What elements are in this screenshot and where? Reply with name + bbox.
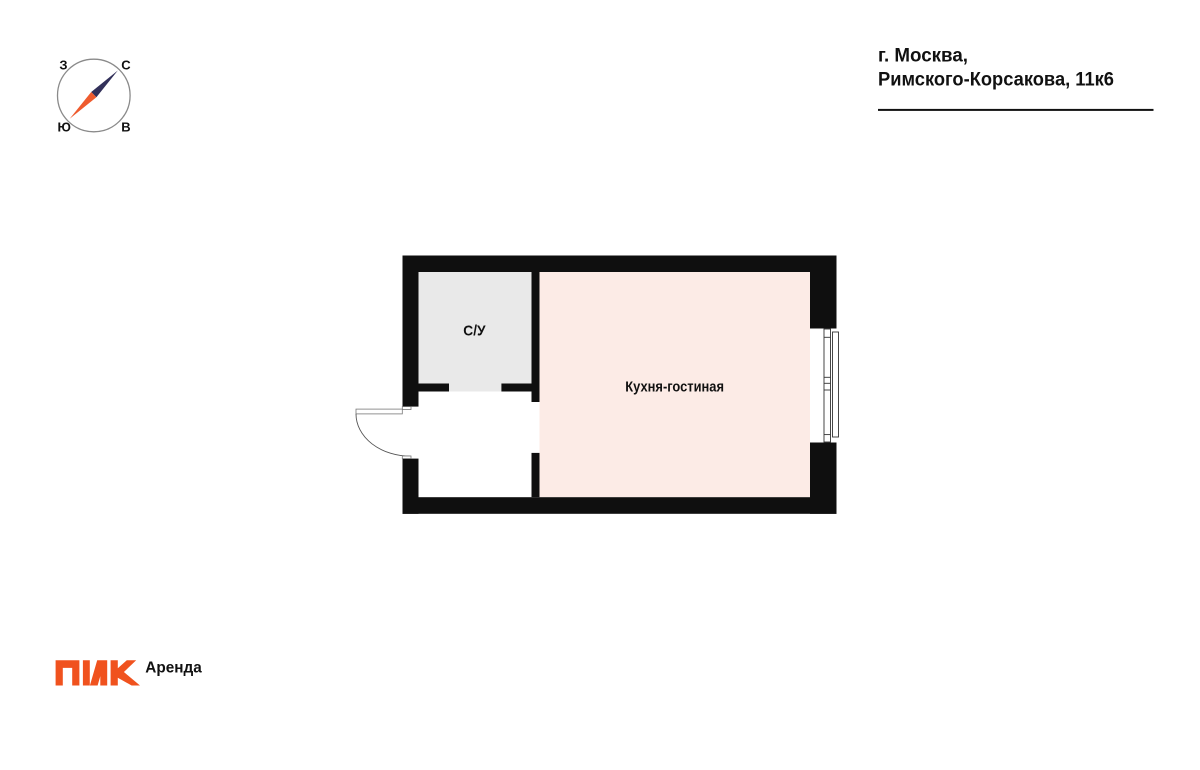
svg-text:С/У: С/У — [463, 323, 486, 340]
svg-text:В: В — [121, 119, 130, 134]
svg-text:г. Москва,: г. Москва, — [878, 45, 968, 66]
svg-text:Римского-Корсакова, 11к6: Римского-Корсакова, 11к6 — [878, 70, 1114, 91]
svg-text:Ю: Ю — [57, 119, 70, 134]
svg-text:С: С — [121, 58, 131, 73]
svg-text:З: З — [59, 58, 67, 73]
svg-text:Кухня-гостиная: Кухня-гостиная — [625, 380, 724, 396]
svg-text:Аренда: Аренда — [145, 659, 202, 676]
